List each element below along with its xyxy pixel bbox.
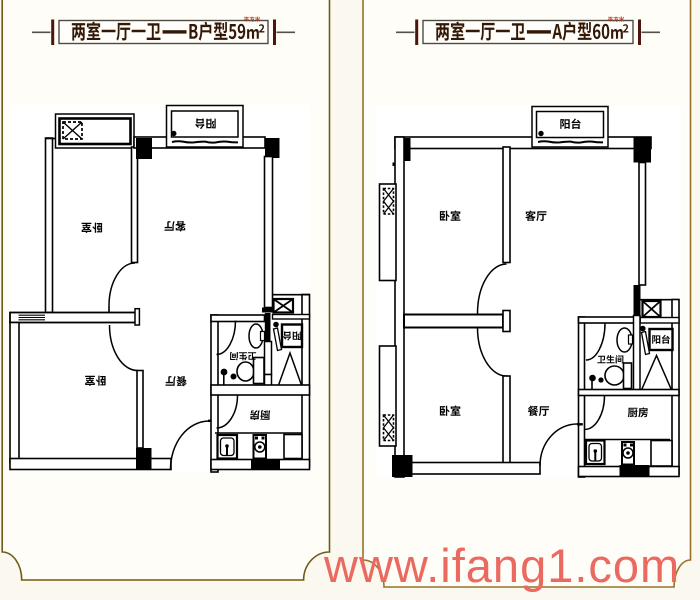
svg-text:www.ifang1.com: www.ifang1.com (323, 539, 680, 592)
